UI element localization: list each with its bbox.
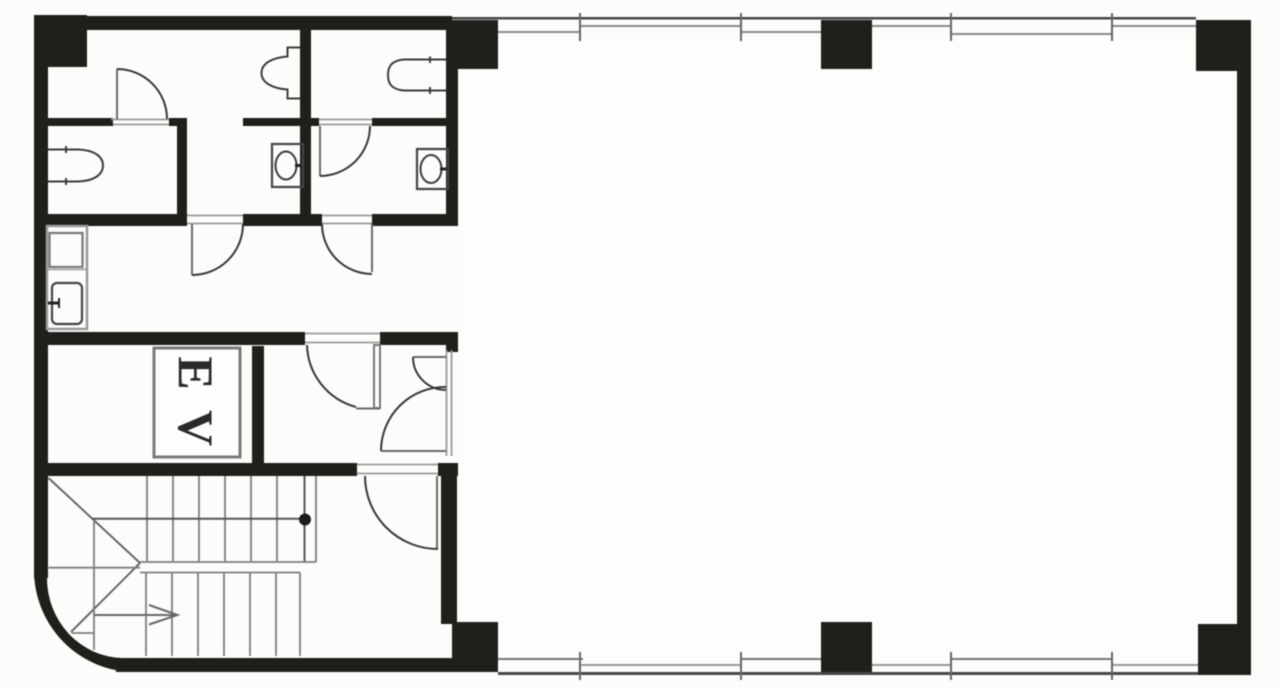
svg-text:E: E xyxy=(168,356,224,389)
svg-text:V: V xyxy=(168,410,224,446)
